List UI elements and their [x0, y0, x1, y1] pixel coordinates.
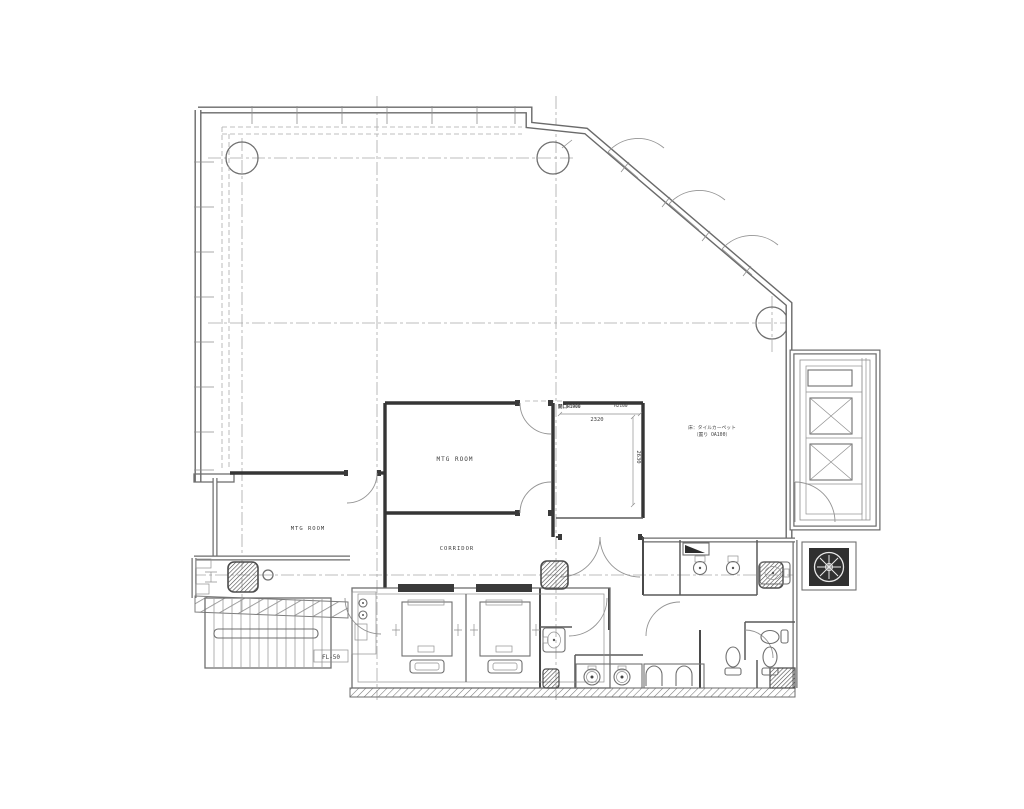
door-arc	[600, 537, 640, 577]
hatched-column	[228, 562, 258, 592]
elevator-car-2	[470, 600, 540, 673]
hatched-column	[543, 669, 559, 688]
door-arc	[569, 598, 607, 636]
sink-icon	[543, 628, 565, 652]
landing-hatch-band	[195, 596, 348, 618]
toilet-icon	[725, 647, 741, 675]
window-mullions	[194, 106, 751, 470]
stair-handrail	[214, 629, 318, 638]
door-arc	[795, 482, 835, 522]
interior-door-swings	[345, 403, 773, 658]
wash-counter	[576, 664, 642, 688]
door-arc	[347, 473, 377, 503]
blueprint-page: FL-50	[0, 0, 1024, 809]
round-basin-icon	[584, 669, 600, 685]
entry-strip	[196, 559, 273, 594]
facade-door-swings	[608, 138, 778, 275]
door-arc	[520, 482, 551, 513]
opening-height-label: H2100	[614, 403, 628, 409]
floor-level-label: FL-50	[322, 654, 340, 661]
room-labels: MTG ROOM MTG ROOM CORRIDOR 床：タイルカーペット （置…	[291, 424, 736, 552]
dimension-width: 2320	[590, 417, 603, 423]
fan-unit-icon	[802, 542, 856, 590]
opening-label: 開口H1900	[558, 403, 581, 410]
balcony	[792, 352, 878, 528]
urinal-icon	[694, 556, 707, 575]
dimension-height: 2630	[635, 450, 641, 463]
floor-finish-note-line1: 床：タイルカーペット	[688, 424, 736, 431]
parapet-dashed-lines	[222, 127, 563, 470]
elevator-door-band	[476, 584, 532, 592]
arch-urinal-icon	[646, 666, 662, 686]
door-arc	[520, 403, 551, 434]
hatched-column	[770, 668, 795, 688]
door-arc	[646, 602, 680, 636]
bottom-wall-hatch	[350, 688, 795, 697]
arch-urinal-icon	[676, 666, 692, 686]
stairs: FL-50	[195, 596, 348, 668]
janitor-sink-icon	[683, 543, 709, 555]
interior-walls	[230, 400, 795, 688]
room-label-mtg-center: MTG ROOM	[437, 456, 474, 463]
dimension-lines: 2320 2630 開口H1900 H2100	[558, 403, 642, 507]
toilet-icon	[761, 630, 788, 644]
room-label-mtg-left: MTG ROOM	[291, 526, 326, 532]
louver-panel-icon	[810, 444, 852, 480]
floor-plan-svg: FL-50	[0, 0, 1024, 809]
steel-beam-symbol	[205, 572, 217, 582]
elevator-car-1	[392, 600, 462, 673]
round-basin-icon	[614, 669, 630, 685]
louver-panel-icon	[810, 398, 852, 434]
hatched-column	[541, 561, 568, 589]
urinal-icon	[727, 556, 740, 575]
urinal-stall-counter	[644, 664, 704, 688]
floor-finish-note-line2: （置り OA100）	[694, 432, 731, 438]
elevator-door-band	[398, 584, 454, 592]
room-label-corridor: CORRIDOR	[440, 546, 475, 552]
balcony-equipment-pad	[808, 370, 852, 386]
